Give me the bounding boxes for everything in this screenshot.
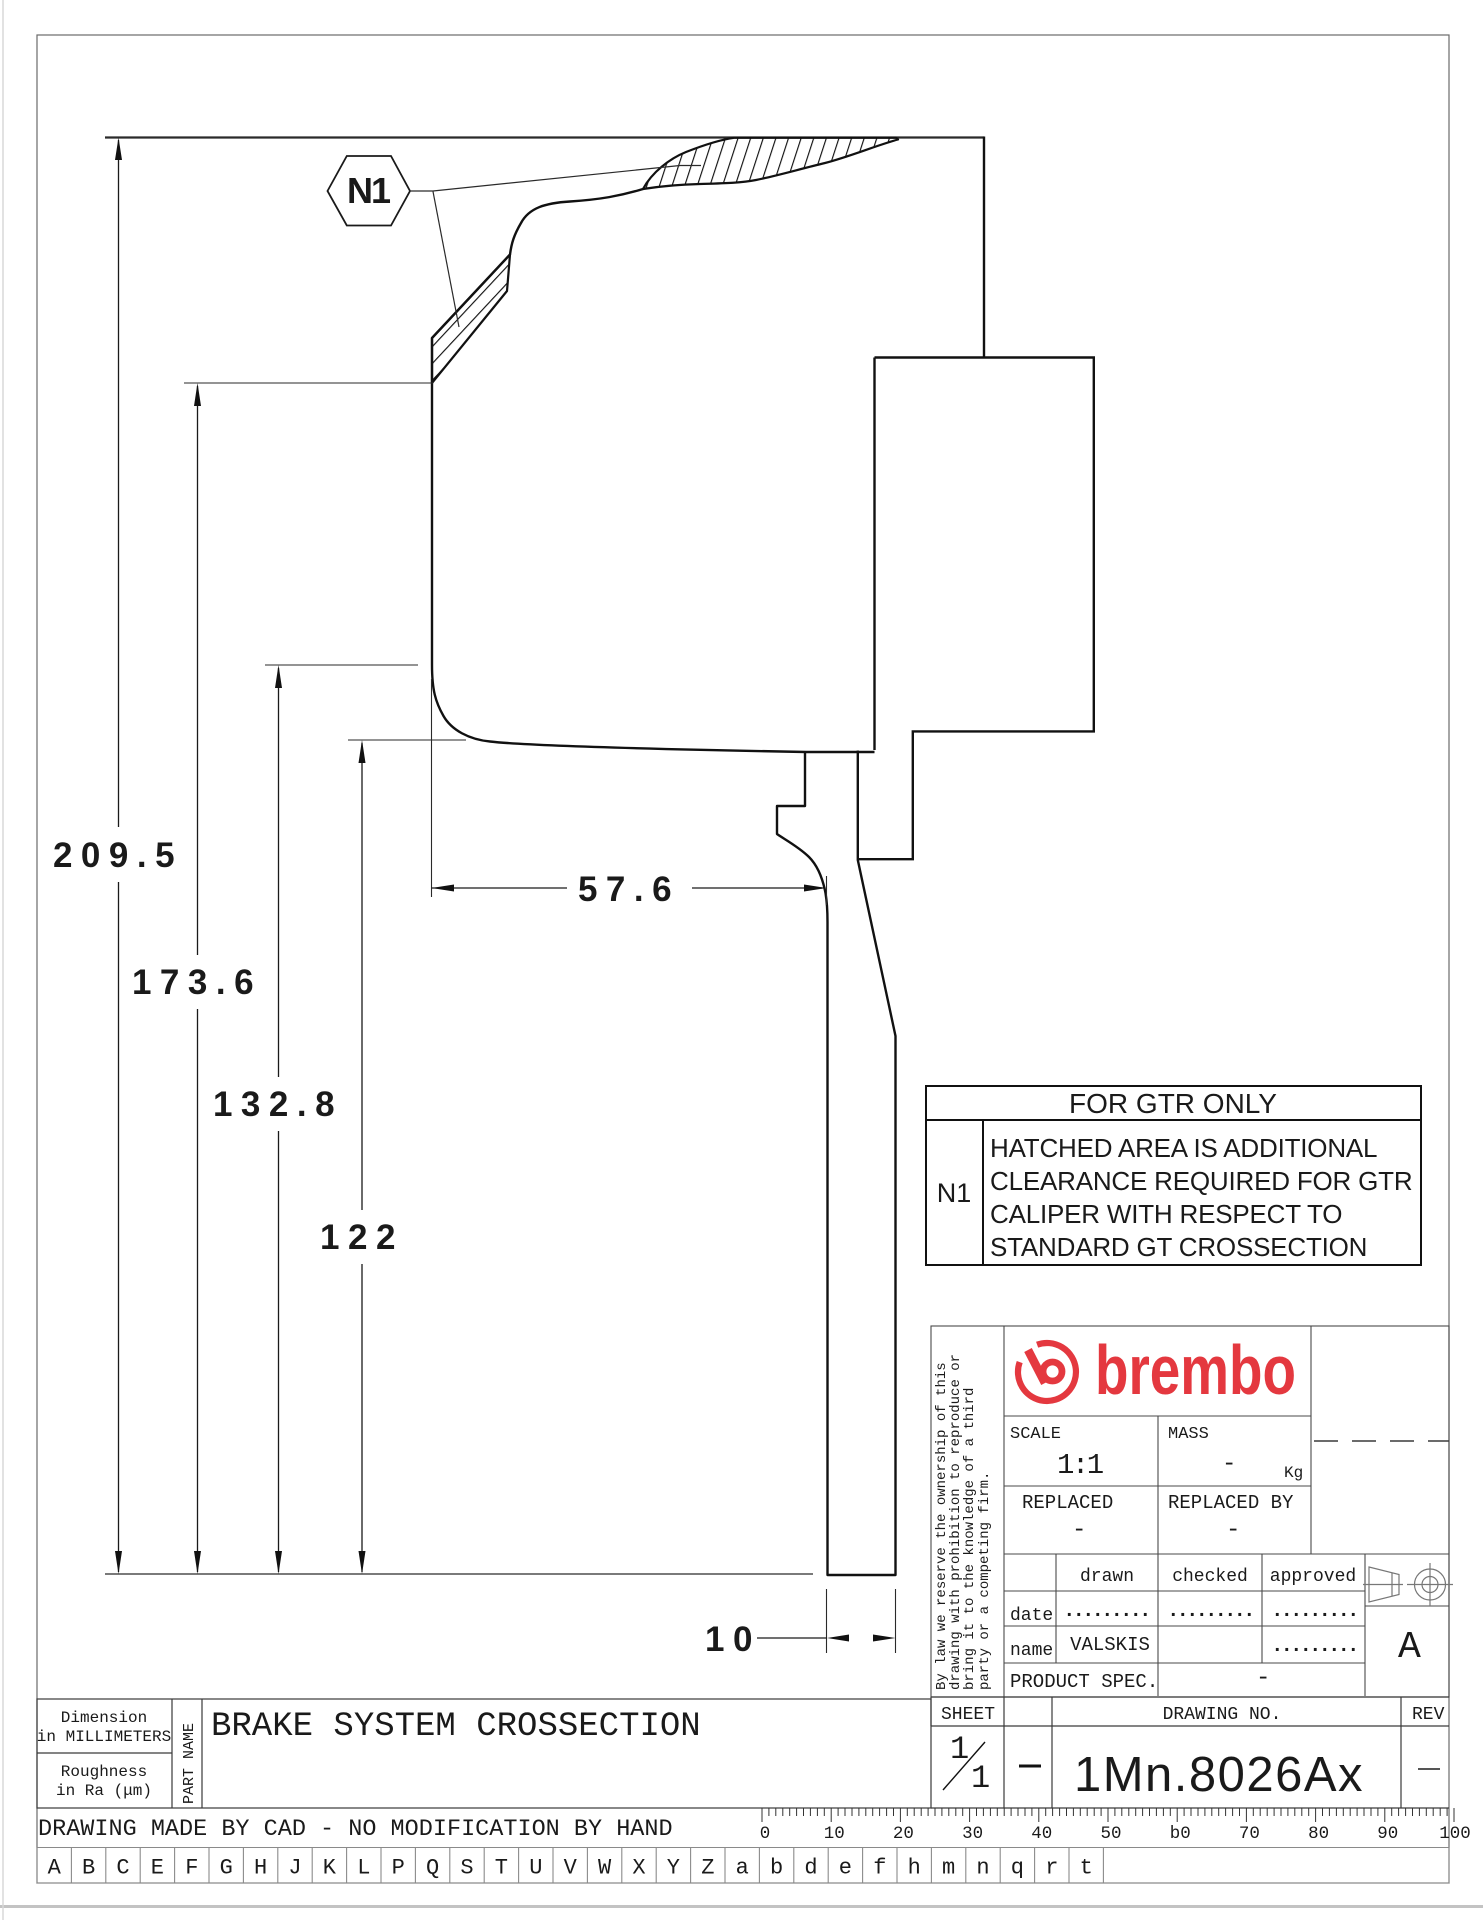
svg-text:STANDARD GT CROSSECTION: STANDARD GT CROSSECTION — [990, 1232, 1367, 1262]
svg-text:Q: Q — [426, 1856, 439, 1881]
svg-text:0: 0 — [760, 1824, 771, 1844]
svg-text:MASS: MASS — [1168, 1425, 1209, 1444]
svg-text:DRAWING MADE BY CAD - NO MODIF: DRAWING MADE BY CAD - NO MODIFICATION BY… — [38, 1816, 673, 1843]
svg-text:-: - — [1072, 1517, 1086, 1544]
svg-text:Y: Y — [667, 1856, 680, 1881]
svg-text:name: name — [1010, 1641, 1053, 1661]
svg-text:20: 20 — [893, 1824, 914, 1844]
svg-text:70: 70 — [1239, 1824, 1260, 1844]
svg-text:-: - — [1226, 1517, 1240, 1544]
svg-text:173.6: 173.6 — [132, 963, 262, 1002]
svg-text:H: H — [254, 1856, 267, 1881]
svg-text:PART NAME: PART NAME — [181, 1723, 198, 1804]
svg-text:90: 90 — [1377, 1824, 1398, 1844]
svg-text:FOR GTR ONLY: FOR GTR ONLY — [1069, 1088, 1277, 1119]
svg-text:f: f — [873, 1856, 886, 1881]
svg-text:VALSKIS: VALSKIS — [1070, 1634, 1150, 1656]
svg-text:bring it to the knowledge of a: bring it to the knowledge of a third — [962, 1388, 978, 1690]
svg-text:S: S — [460, 1856, 473, 1881]
svg-text:DRAWING NO.: DRAWING NO. — [1163, 1705, 1282, 1725]
svg-text:N1: N1 — [937, 1178, 972, 1208]
svg-text:F: F — [185, 1856, 198, 1881]
svg-text:U: U — [529, 1856, 542, 1881]
svg-text:brembo: brembo — [1095, 1331, 1296, 1409]
svg-text:P: P — [392, 1856, 405, 1881]
svg-text:Kg: Kg — [1284, 1464, 1303, 1482]
svg-text:100: 100 — [1439, 1824, 1471, 1844]
svg-text:40: 40 — [1031, 1824, 1052, 1844]
svg-text:BRAKE SYSTEM CROSSECTION: BRAKE SYSTEM CROSSECTION — [211, 1708, 701, 1746]
svg-text:J: J — [288, 1856, 301, 1881]
svg-text:L: L — [357, 1856, 370, 1881]
svg-text:Dimension: Dimension — [61, 1709, 147, 1727]
svg-text:80: 80 — [1308, 1824, 1329, 1844]
svg-text:SHEET: SHEET — [941, 1705, 995, 1725]
svg-text:t: t — [1080, 1856, 1093, 1881]
svg-text:W: W — [598, 1856, 612, 1881]
svg-text:e: e — [839, 1856, 852, 1881]
svg-text:50: 50 — [1100, 1824, 1121, 1844]
svg-text:party or a competing firm.: party or a competing firm. — [977, 1472, 993, 1690]
svg-text:Z: Z — [701, 1856, 714, 1881]
svg-text:X: X — [632, 1856, 645, 1881]
svg-text:h: h — [908, 1856, 921, 1881]
svg-text:.........: ......... — [1271, 1600, 1357, 1623]
svg-text:132.8: 132.8 — [213, 1085, 343, 1124]
svg-text:CALIPER WITH RESPECT TO: CALIPER WITH RESPECT TO — [990, 1199, 1342, 1229]
svg-text:.........: ......... — [1167, 1600, 1253, 1623]
svg-text:drawn: drawn — [1080, 1567, 1134, 1587]
svg-text:57.6: 57.6 — [578, 870, 680, 909]
svg-text:a: a — [736, 1856, 749, 1881]
svg-text:1:1: 1:1 — [1057, 1449, 1103, 1482]
svg-text:CLEARANCE REQUIRED FOR GTR: CLEARANCE REQUIRED FOR GTR — [990, 1166, 1412, 1196]
svg-text:A: A — [1398, 1626, 1421, 1669]
svg-text:1Mn.8026Ax: 1Mn.8026Ax — [1074, 1748, 1364, 1802]
svg-text:n: n — [976, 1856, 989, 1881]
svg-text:.........: ......... — [1063, 1600, 1149, 1623]
svg-text:checked: checked — [1172, 1567, 1248, 1587]
svg-text:C: C — [116, 1856, 129, 1881]
svg-text:d: d — [804, 1856, 817, 1881]
svg-text:b0: b0 — [1170, 1824, 1191, 1844]
svg-text:REPLACED: REPLACED — [1022, 1492, 1113, 1514]
svg-text:1: 1 — [971, 1760, 990, 1797]
svg-text:122: 122 — [320, 1218, 404, 1257]
svg-text:SCALE: SCALE — [1010, 1425, 1061, 1444]
svg-text:A: A — [48, 1856, 62, 1881]
svg-text:B: B — [82, 1856, 95, 1881]
svg-text:10: 10 — [705, 1620, 761, 1659]
svg-text:209.5: 209.5 — [53, 836, 183, 875]
svg-text:-: - — [1222, 1451, 1236, 1478]
svg-text:10: 10 — [824, 1824, 845, 1844]
svg-text:Roughness: Roughness — [61, 1763, 147, 1781]
svg-text:K: K — [323, 1856, 337, 1881]
svg-text:HATCHED AREA IS ADDITIONAL: HATCHED AREA IS ADDITIONAL — [990, 1133, 1377, 1163]
svg-text:-: - — [1256, 1665, 1270, 1692]
svg-text:.........: ......... — [1271, 1635, 1357, 1658]
svg-text:30: 30 — [962, 1824, 983, 1844]
svg-text:r: r — [1045, 1856, 1058, 1881]
svg-text:q: q — [1011, 1856, 1024, 1881]
svg-text:b: b — [770, 1856, 783, 1881]
svg-text:V: V — [564, 1856, 578, 1881]
svg-text:date: date — [1010, 1606, 1053, 1626]
svg-text:in MILLIMETERS: in MILLIMETERS — [37, 1728, 171, 1746]
svg-text:N1: N1 — [347, 170, 391, 211]
svg-text:REV: REV — [1412, 1705, 1445, 1725]
svg-text:PRODUCT SPEC.: PRODUCT SPEC. — [1010, 1671, 1158, 1693]
svg-text:REPLACED BY: REPLACED BY — [1168, 1492, 1294, 1514]
svg-text:G: G — [220, 1856, 233, 1881]
svg-text:approved: approved — [1270, 1567, 1356, 1587]
svg-text:T: T — [495, 1856, 508, 1881]
svg-text:E: E — [151, 1856, 164, 1881]
svg-text:in Ra (μm): in Ra (μm) — [56, 1782, 152, 1800]
svg-text:m: m — [942, 1856, 955, 1881]
